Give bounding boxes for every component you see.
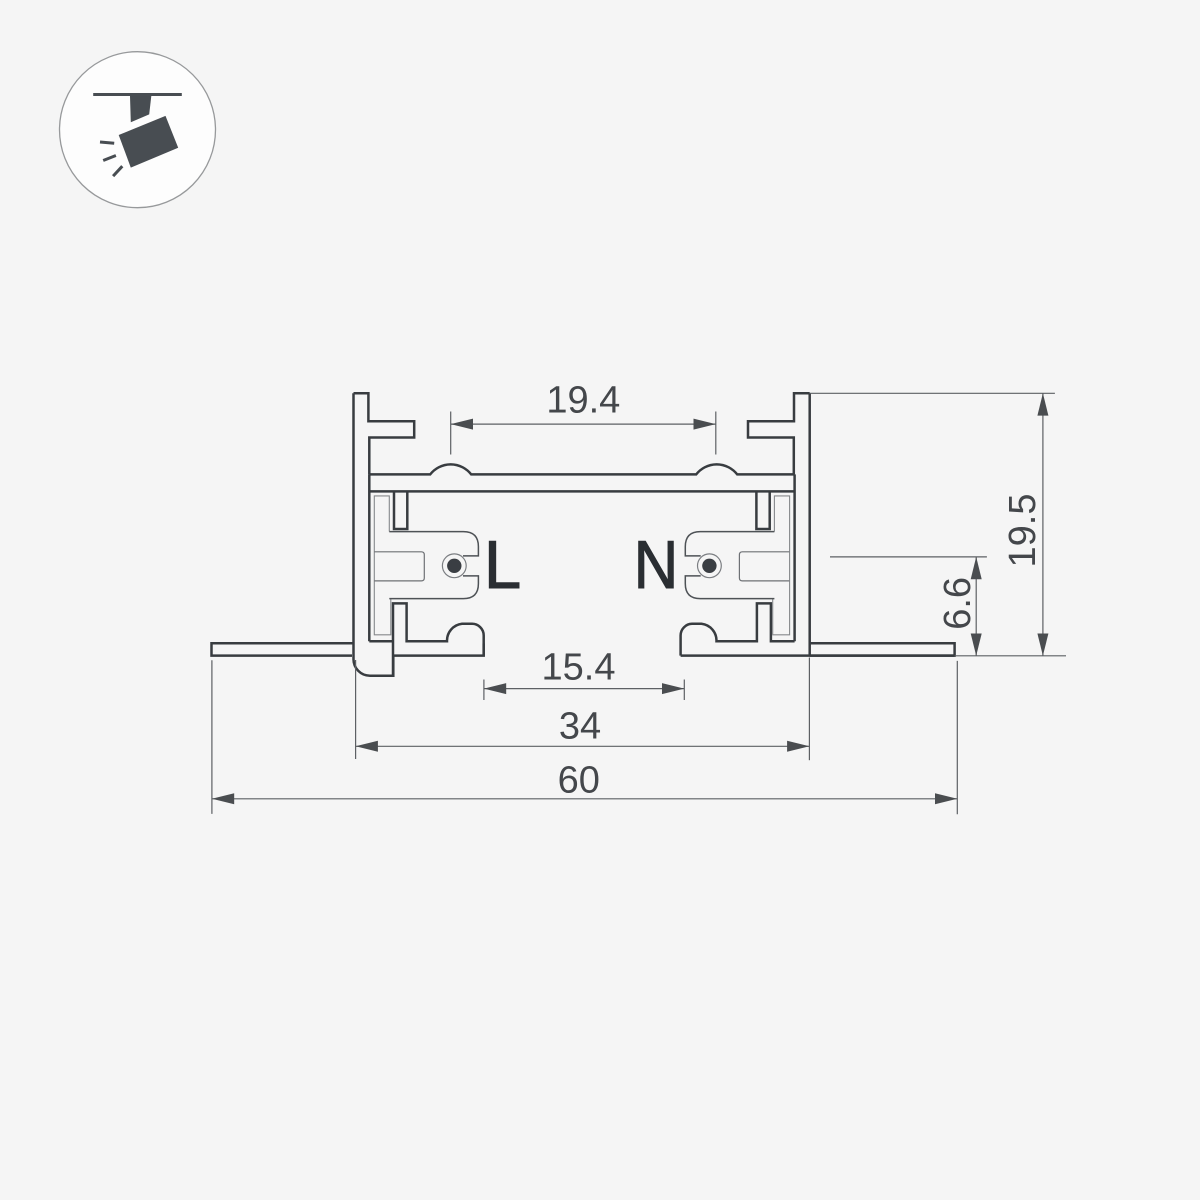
svg-text:60: 60 — [558, 760, 600, 802]
svg-text:19.5: 19.5 — [1002, 494, 1044, 568]
svg-text:L: L — [484, 528, 521, 604]
svg-text:N: N — [634, 526, 679, 602]
svg-text:15.4: 15.4 — [542, 647, 616, 689]
svg-text:19.4: 19.4 — [546, 379, 620, 421]
svg-text:6.6: 6.6 — [937, 577, 979, 630]
svg-text:34: 34 — [559, 706, 601, 748]
